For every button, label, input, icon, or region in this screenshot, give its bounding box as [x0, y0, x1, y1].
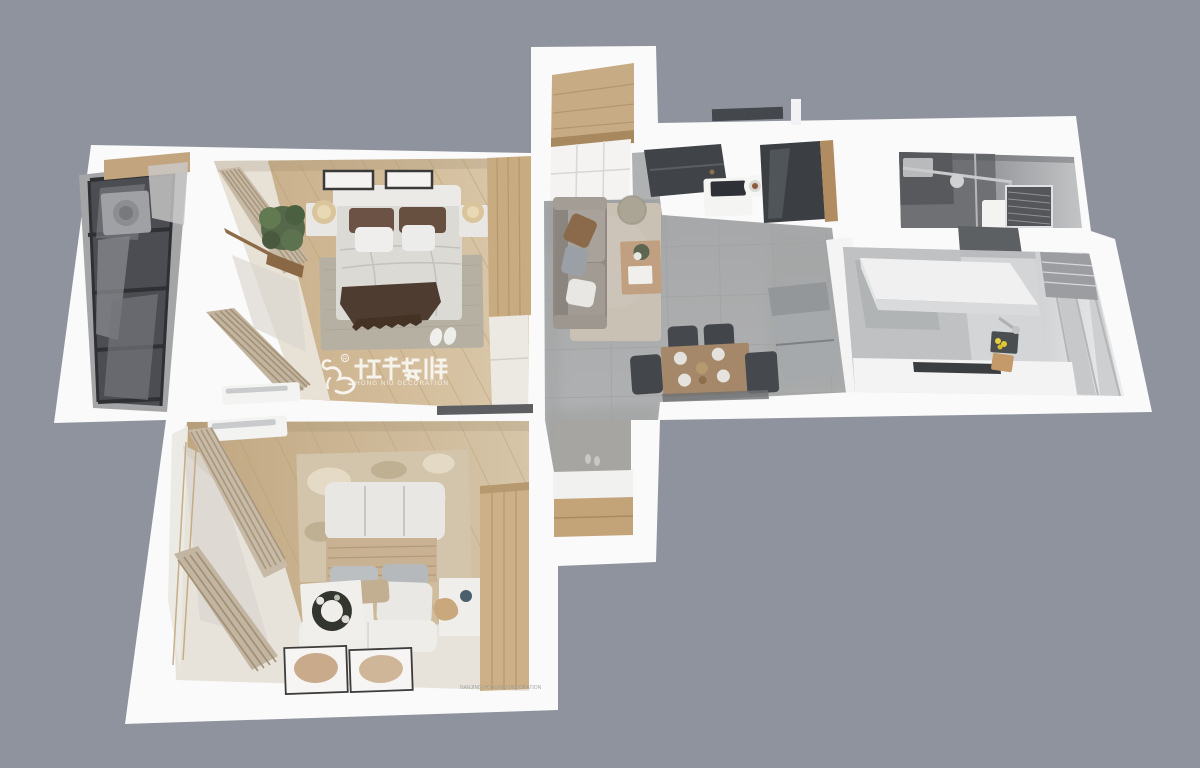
svg-text:HONG NIU DECORATION: HONG NIU DECORATION [355, 380, 449, 387]
svg-text:NANJING HONGNIU DECORATION: NANJING HONGNIU DECORATION [460, 685, 542, 691]
svg-text:R: R [343, 357, 347, 363]
